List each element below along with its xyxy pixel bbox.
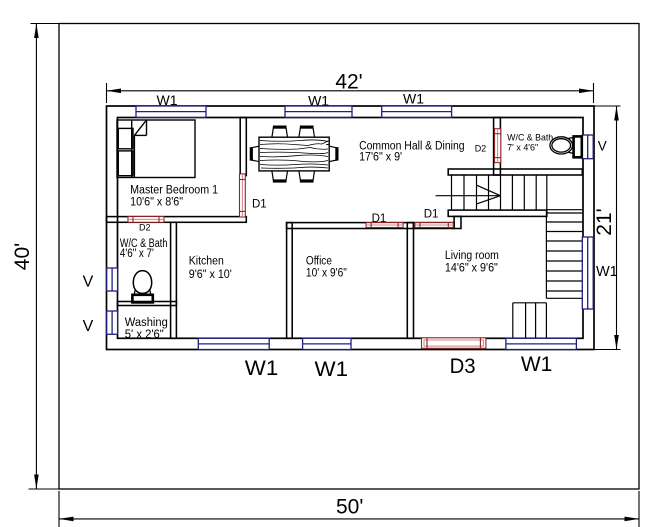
svg-text:Kitchen: Kitchen (189, 255, 224, 267)
svg-text:D3: D3 (450, 355, 476, 378)
svg-text:V: V (83, 318, 94, 335)
svg-text:Living room: Living room (445, 250, 499, 262)
svg-text:Washing: Washing (125, 317, 168, 329)
svg-text:14'6" x 9'6": 14'6" x 9'6" (445, 262, 498, 274)
svg-text:W1: W1 (315, 358, 349, 381)
svg-text:10'6" x 8'6": 10'6" x 8'6" (130, 196, 183, 208)
svg-text:W1: W1 (596, 264, 618, 280)
svg-text:5' x 2'6": 5' x 2'6" (125, 329, 164, 341)
svg-text:W1: W1 (308, 93, 329, 109)
svg-text:7' x 4'6": 7' x 4'6" (507, 142, 538, 152)
svg-text:W1: W1 (245, 357, 279, 380)
svg-text:W1: W1 (521, 353, 553, 376)
svg-text:D1: D1 (372, 213, 387, 225)
svg-text:W/C & Bath: W/C & Bath (507, 132, 553, 142)
svg-text:V: V (598, 139, 607, 154)
svg-text:9'6" x 10': 9'6" x 10' (189, 269, 232, 281)
svg-text:D2: D2 (475, 144, 487, 154)
svg-text:D2: D2 (139, 223, 151, 233)
svg-text:Office: Office (306, 255, 332, 267)
svg-text:4'6" x 7': 4'6" x 7' (120, 248, 154, 260)
svg-text:50': 50' (336, 496, 363, 519)
svg-text:W1: W1 (403, 91, 424, 107)
svg-text:21': 21' (593, 208, 616, 235)
svg-text:40': 40' (11, 243, 34, 270)
svg-text:Master Bedroom 1: Master Bedroom 1 (130, 185, 218, 197)
svg-text:Common Hall & Dining: Common Hall & Dining (359, 140, 465, 152)
svg-text:V: V (83, 274, 94, 291)
svg-text:10' x 9'6": 10' x 9'6" (306, 267, 347, 279)
svg-text:17'6" x 9': 17'6" x 9' (359, 152, 402, 164)
svg-text:D1: D1 (252, 199, 267, 211)
svg-text:42': 42' (335, 71, 362, 94)
svg-text:W1: W1 (157, 92, 178, 108)
svg-text:D1: D1 (424, 209, 439, 221)
